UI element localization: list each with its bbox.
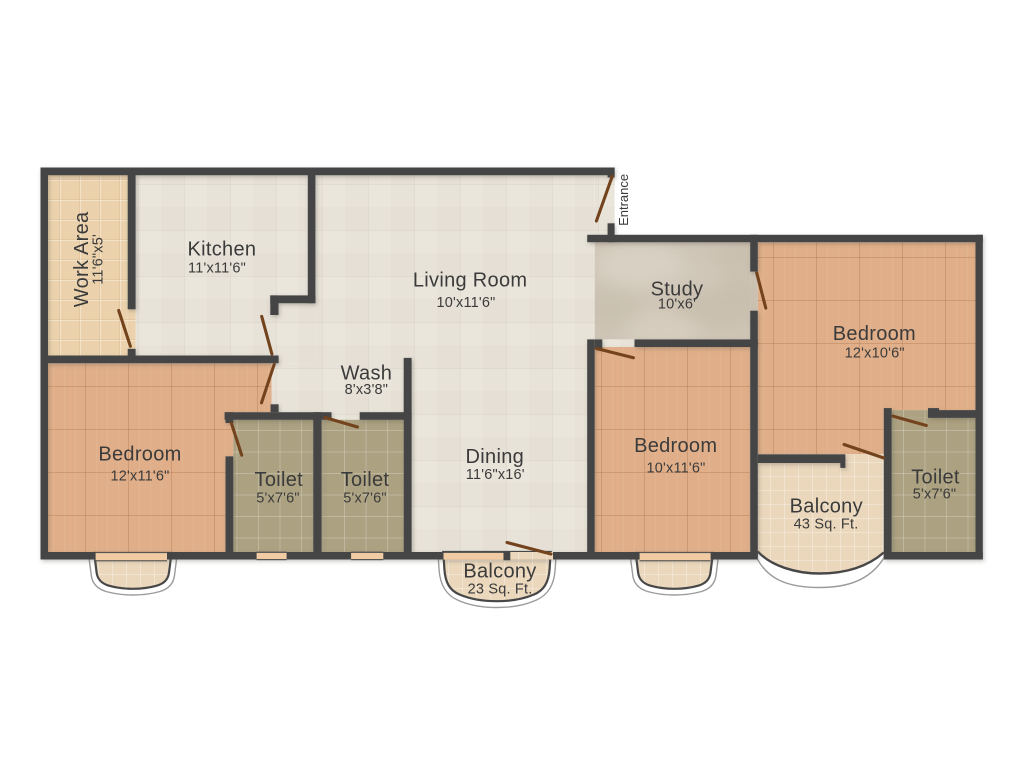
- svg-text:23 Sq. Ft.: 23 Sq. Ft.: [468, 582, 533, 598]
- svg-text:5'x7'6": 5'x7'6": [913, 487, 957, 503]
- svg-text:11'x11'6": 11'x11'6": [188, 260, 246, 276]
- svg-text:8'x3'8": 8'x3'8": [345, 382, 389, 398]
- svg-text:5'x7'6": 5'x7'6": [343, 491, 387, 507]
- svg-text:10'x11'6": 10'x11'6": [437, 295, 496, 311]
- svg-text:Living Room: Living Room: [413, 270, 527, 292]
- svg-text:12'x10'6": 12'x10'6": [845, 345, 905, 361]
- svg-text:Bedroom: Bedroom: [833, 323, 916, 345]
- svg-text:Bedroom: Bedroom: [634, 435, 717, 457]
- svg-text:Toilet: Toilet: [255, 469, 304, 491]
- svg-text:12'x11'6": 12'x11'6": [111, 468, 170, 484]
- svg-text:Bedroom: Bedroom: [98, 444, 181, 466]
- svg-text:10'x6': 10'x6': [658, 297, 696, 313]
- svg-text:5'x7'6": 5'x7'6": [256, 491, 300, 507]
- svg-text:Dining: Dining: [466, 446, 525, 468]
- svg-text:Toilet: Toilet: [341, 469, 390, 491]
- svg-text:10'x11'6": 10'x11'6": [647, 461, 706, 477]
- svg-text:43 Sq. Ft.: 43 Sq. Ft.: [794, 517, 859, 533]
- svg-text:Balcony: Balcony: [463, 561, 536, 583]
- svg-text:11'6"x5': 11'6"x5': [91, 234, 107, 285]
- svg-text:Kitchen: Kitchen: [187, 239, 256, 261]
- svg-text:Balcony: Balcony: [790, 496, 863, 518]
- svg-text:Entrance: Entrance: [616, 174, 631, 226]
- svg-text:Toilet: Toilet: [911, 467, 960, 489]
- svg-text:11'6"x16': 11'6"x16': [466, 467, 525, 483]
